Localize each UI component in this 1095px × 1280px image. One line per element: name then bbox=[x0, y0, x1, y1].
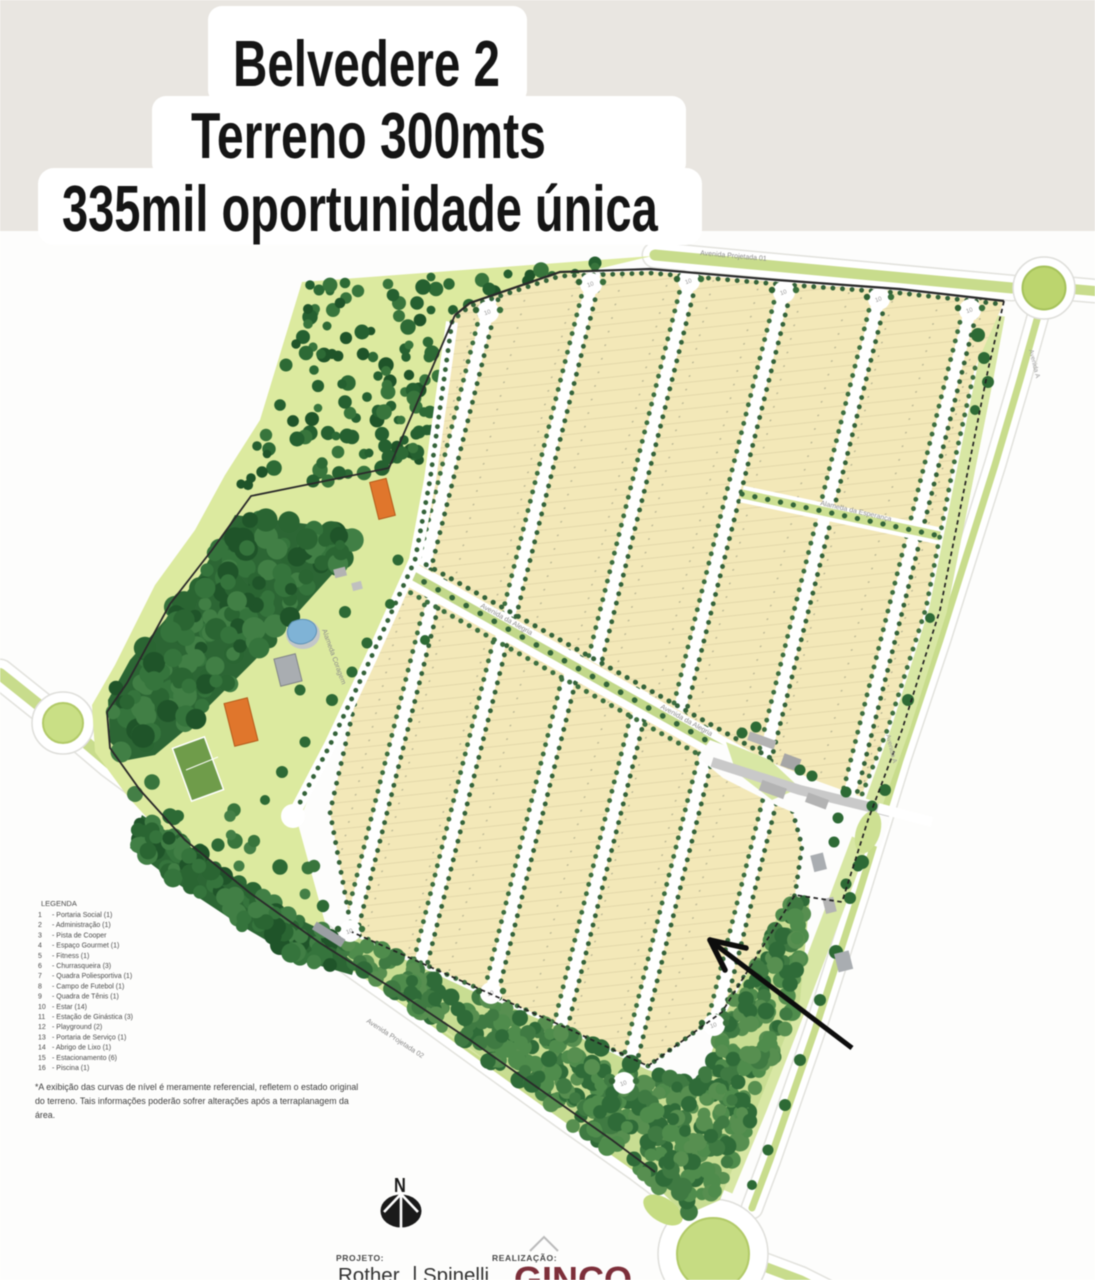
svg-text:1: 1 bbox=[38, 912, 42, 919]
svg-text:área.: área. bbox=[35, 1110, 55, 1120]
svg-text:7: 7 bbox=[38, 973, 42, 980]
svg-text:335mil oportunidade única: 335mil oportunidade única bbox=[62, 174, 658, 246]
svg-text:- Playground (2): - Playground (2) bbox=[52, 1024, 102, 1031]
svg-text:14: 14 bbox=[38, 1045, 46, 1052]
svg-text:Belvedere 2: Belvedere 2 bbox=[233, 28, 500, 101]
svg-text:- Estar (14): - Estar (14) bbox=[52, 1004, 87, 1011]
svg-text:3: 3 bbox=[38, 932, 42, 939]
svg-text:- Pista de Cooper: - Pista de Cooper bbox=[52, 932, 107, 939]
svg-text:do terreno. Tais informações p: do terreno. Tais informações poderão sof… bbox=[35, 1096, 349, 1106]
svg-text:Spinelli: Spinelli bbox=[423, 1264, 489, 1280]
svg-text:GINCO: GINCO bbox=[514, 1259, 632, 1280]
svg-text:|: | bbox=[412, 1262, 418, 1280]
svg-text:5: 5 bbox=[38, 953, 42, 960]
svg-text:4: 4 bbox=[38, 943, 42, 950]
svg-text:- Churrasqueira (3): - Churrasqueira (3) bbox=[52, 963, 111, 970]
svg-text:LEGENDA: LEGENDA bbox=[41, 899, 77, 908]
svg-text:- Estacionamento (6): - Estacionamento (6) bbox=[52, 1055, 117, 1062]
svg-text:- Piscina (1): - Piscina (1) bbox=[52, 1065, 89, 1072]
svg-text:16: 16 bbox=[38, 1065, 46, 1072]
svg-text:10: 10 bbox=[38, 1004, 46, 1011]
svg-text:- Campo de Futebol (1): - Campo de Futebol (1) bbox=[52, 983, 124, 990]
svg-text:11: 11 bbox=[38, 1014, 45, 1021]
svg-text:13: 13 bbox=[38, 1034, 46, 1041]
svg-text:15: 15 bbox=[38, 1055, 46, 1062]
svg-text:2: 2 bbox=[38, 922, 42, 929]
svg-text:- Estação de Ginástica (3): - Estação de Ginástica (3) bbox=[52, 1014, 133, 1021]
svg-text:Rother: Rother bbox=[338, 1264, 400, 1280]
svg-text:9: 9 bbox=[38, 994, 42, 1001]
svg-text:Terreno 300mts: Terreno 300mts bbox=[191, 100, 546, 173]
svg-text:- Quadra Poliesportiva (1): - Quadra Poliesportiva (1) bbox=[52, 973, 132, 980]
svg-text:6: 6 bbox=[38, 963, 42, 970]
svg-text:- Quadra de Tênis (1): - Quadra de Tênis (1) bbox=[52, 994, 119, 1001]
svg-text:PROJETO:: PROJETO: bbox=[336, 1253, 384, 1263]
svg-text:12: 12 bbox=[38, 1024, 46, 1031]
svg-text:- Fitness (1): - Fitness (1) bbox=[52, 953, 89, 960]
svg-text:8: 8 bbox=[38, 983, 42, 990]
svg-text:*A exibição das curvas de níve: *A exibição das curvas de nível é merame… bbox=[35, 1082, 358, 1092]
svg-text:- Espaço Gourmet (1): - Espaço Gourmet (1) bbox=[52, 943, 119, 950]
svg-text:- Abrigo de Lixo (1): - Abrigo de Lixo (1) bbox=[52, 1045, 111, 1052]
svg-text:- Portaria de Serviço (1): - Portaria de Serviço (1) bbox=[52, 1034, 126, 1041]
svg-text:- Administração (1): - Administração (1) bbox=[52, 922, 111, 929]
svg-text:- Portaria Social (1): - Portaria Social (1) bbox=[52, 912, 112, 919]
